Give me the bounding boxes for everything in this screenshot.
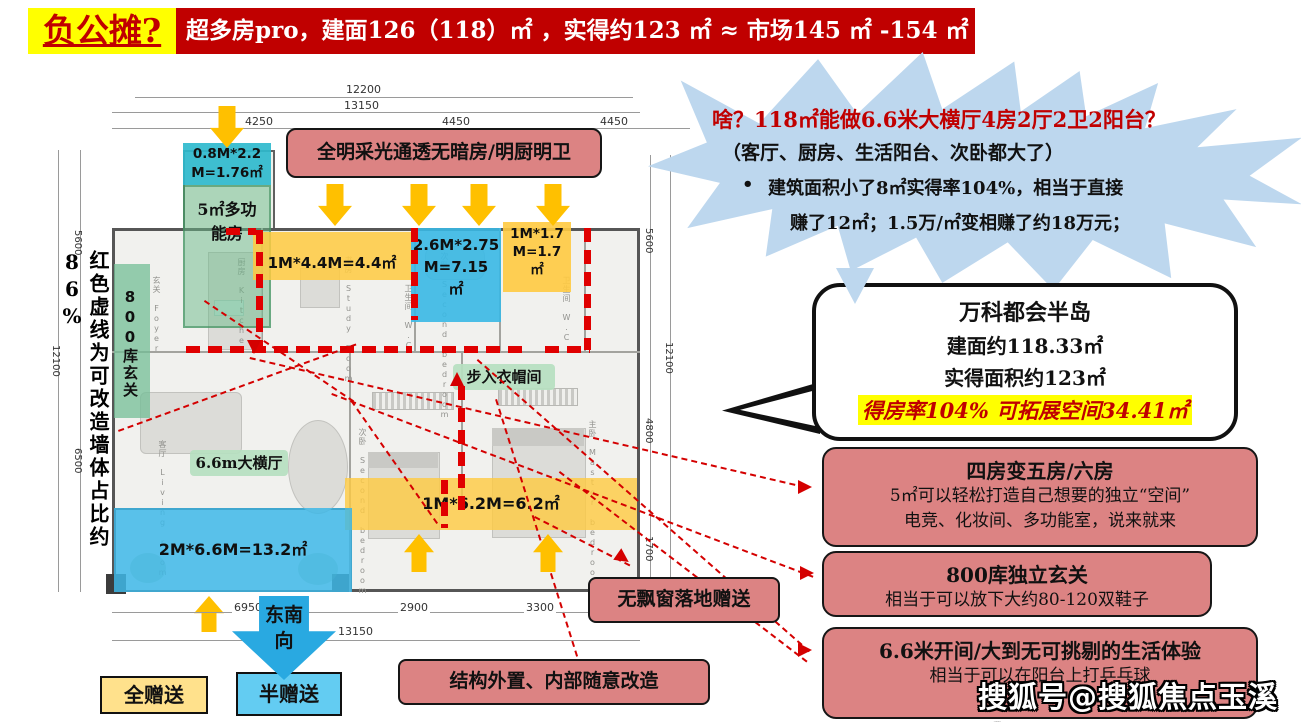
starburst-bullet-line1: 建筑面积小了8㎡实得率104%，相当于直接 — [768, 174, 1198, 200]
modifiable-wall-dash — [420, 346, 530, 353]
modifiable-wall-dash — [411, 228, 418, 320]
dim-line — [112, 112, 640, 113]
balcony-overlay: 2M*6.6M=13.2㎡ — [114, 508, 352, 592]
gift-box-1-7: 1M*1.7 M=1.7 ㎡ — [503, 222, 571, 292]
bed-pillow — [368, 452, 438, 468]
daylight-callout: 全明采光通透无暗房/明厨明卫 — [286, 128, 602, 178]
gift-box-7-15: 2.6M*2.75 M=7.15 ㎡ — [411, 228, 501, 322]
dim-top-total: 13150 — [342, 100, 381, 111]
dim-top-outer: 12200 — [344, 84, 383, 95]
dim-left-12100: 12100 — [50, 345, 60, 377]
starburst-shape — [648, 52, 1301, 290]
gift-strip-6-2: 1M*6.2M=6.2㎡ — [345, 478, 637, 530]
leader-arrowhead — [800, 566, 814, 580]
modifiable-wall-dash — [226, 228, 256, 235]
direction-text-line2: 向 — [232, 626, 336, 653]
benefit-1-body: 5㎡可以轻松打造自己想要的独立“空间” 电竞、化妆间、多功能室，说来就来 — [824, 484, 1256, 533]
dining-table — [288, 420, 348, 514]
starburst-bullet-line2: 赚了12㎡；1.5万/㎡变相赚了约18万元； — [790, 209, 1210, 235]
legend-full-gift: 全赠送 — [100, 676, 208, 714]
benefit-3-title: 6.6米开间/大到无可挑剔的生活体验 — [824, 635, 1256, 664]
dim-line — [112, 640, 640, 641]
header-banner: 超多房pro，建面126（118）㎡ ，实得约123 ㎡ ≈ 市场145 ㎡ -… — [176, 8, 975, 54]
dim-right-4800: 4800 — [643, 418, 653, 443]
gift-arrow-down — [462, 184, 496, 226]
bubble-actual-area: 实得面积约123㎡ — [816, 362, 1234, 391]
no-baywindow-callout: 无飘窗落地赠送 — [588, 577, 780, 623]
project-bubble: 万科都会半岛 建面约118.33㎡ 实得面积约123㎡ 得房率104% 可拓展空… — [812, 283, 1238, 441]
structure-callout: 结构外置、内部随意改造 — [398, 659, 710, 705]
red-dash-note: 红色虚线为可改造墙体占比约86% — [60, 250, 113, 618]
sofa — [140, 392, 242, 454]
dim-line — [112, 612, 640, 613]
dim-bottom-total: 13150 — [336, 626, 375, 637]
dim-bottom-seg-3: 3300 — [524, 602, 556, 613]
benefit-2-title: 800库独立玄关 — [824, 559, 1210, 588]
gift-arrow-up — [194, 596, 224, 632]
gift-arrow-down — [536, 184, 570, 226]
page-title: 负公摊? — [28, 8, 176, 54]
living-hall-label: 6.6m大横厅 — [190, 450, 288, 476]
dim-bottom-seg-2: 2900 — [398, 602, 430, 613]
starburst-question: 啥？118㎡能做6.6米大横厅4房2厅2卫2阳台？ — [712, 104, 1192, 134]
bubble-built-area: 建面约118.33㎡ — [816, 330, 1234, 359]
wardrobe — [498, 388, 578, 406]
starburst-subtitle: （客厅、厨房、生活阳台、次卧都大了） — [722, 138, 1182, 165]
gift-arrow-down — [402, 184, 436, 226]
dim-right-5600: 5600 — [643, 228, 653, 253]
benefit-box-2: 800库独立玄关 相当于可以放下大约80-120双鞋子 — [822, 551, 1212, 617]
leader-arrowhead — [247, 340, 261, 354]
gift-strip-4-4: 1M*4.4M=4.4㎡ — [253, 232, 411, 280]
benefit-1-title: 四房变五房/六房 — [824, 455, 1256, 484]
bubble-highlight: 得房率104% 可拓展空间34.41㎡ — [858, 395, 1192, 425]
dim-right-12100: 12100 — [663, 342, 673, 374]
benefit-2-body: 相当于可以放下大约80-120双鞋子 — [824, 588, 1210, 613]
watermark: 搜狐号@搜狐焦点玉溪站 — [978, 674, 1301, 722]
legend-half-gift: 半赠送 — [236, 672, 342, 716]
modifiable-wall-dash — [441, 480, 448, 528]
leader-arrowhead — [450, 372, 464, 386]
benefit-box-1: 四房变五房/六房 5㎡可以轻松打造自己想要的独立“空间” 电竞、化妆间、多功能室… — [822, 447, 1258, 547]
dim-top-seg-1: 4250 — [243, 116, 275, 127]
leader-arrowhead — [798, 643, 812, 657]
gift-arrow-down — [318, 184, 352, 226]
modifiable-wall-dash — [256, 230, 263, 352]
infographic-canvas: 负公摊? 超多房pro，建面126（118）㎡ ，实得约123 ㎡ ≈ 市场14… — [0, 0, 1301, 722]
dim-top-seg-2: 4450 — [440, 116, 472, 127]
modifiable-wall-dash — [186, 346, 412, 353]
bubble-project-name: 万科都会半岛 — [816, 295, 1234, 327]
dim-line — [135, 97, 633, 98]
dim-top-seg-3: 4450 — [598, 116, 630, 127]
entry-label: 800库玄关 — [120, 268, 141, 418]
multiroom-dim-overlay: 0.8M*2.2 M=1.76㎡ — [183, 143, 271, 185]
dim-line — [650, 155, 651, 592]
room-label-foyer: 玄关 Foyer — [152, 276, 161, 354]
cloakroom-label: 步入衣帽间 — [453, 364, 555, 390]
leader-arrowhead — [798, 480, 812, 494]
starburst-bullet-mark: • — [742, 174, 754, 195]
modifiable-wall-dash — [584, 228, 591, 350]
